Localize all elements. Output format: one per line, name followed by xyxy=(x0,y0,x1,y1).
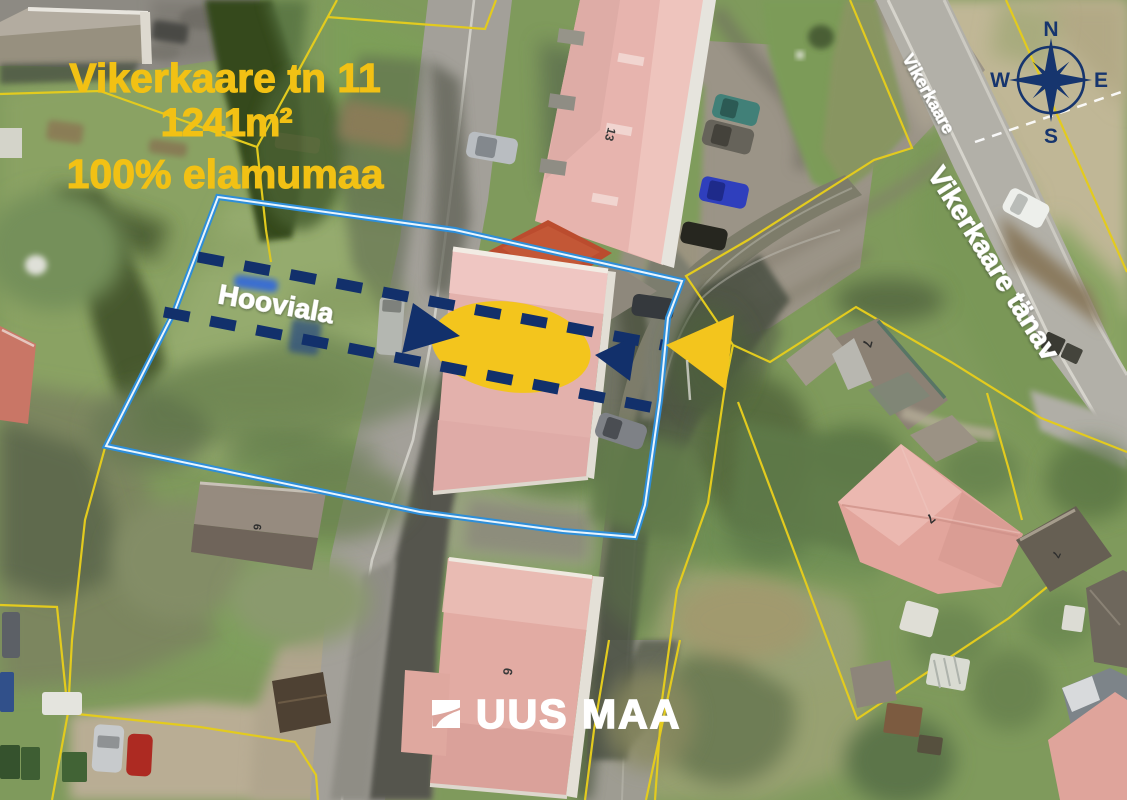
svg-text:UUS MAA: UUS MAA xyxy=(476,691,681,737)
svg-text:S: S xyxy=(1044,125,1058,148)
svg-text:100% elamumaa: 100% elamumaa xyxy=(67,151,385,197)
svg-text:W: W xyxy=(990,69,1010,92)
svg-text:Vikerkaare tn 11: Vikerkaare tn 11 xyxy=(69,55,381,101)
svg-text:E: E xyxy=(1094,69,1108,92)
svg-text:1241m²: 1241m² xyxy=(161,101,293,145)
svg-text:N: N xyxy=(1043,18,1058,41)
